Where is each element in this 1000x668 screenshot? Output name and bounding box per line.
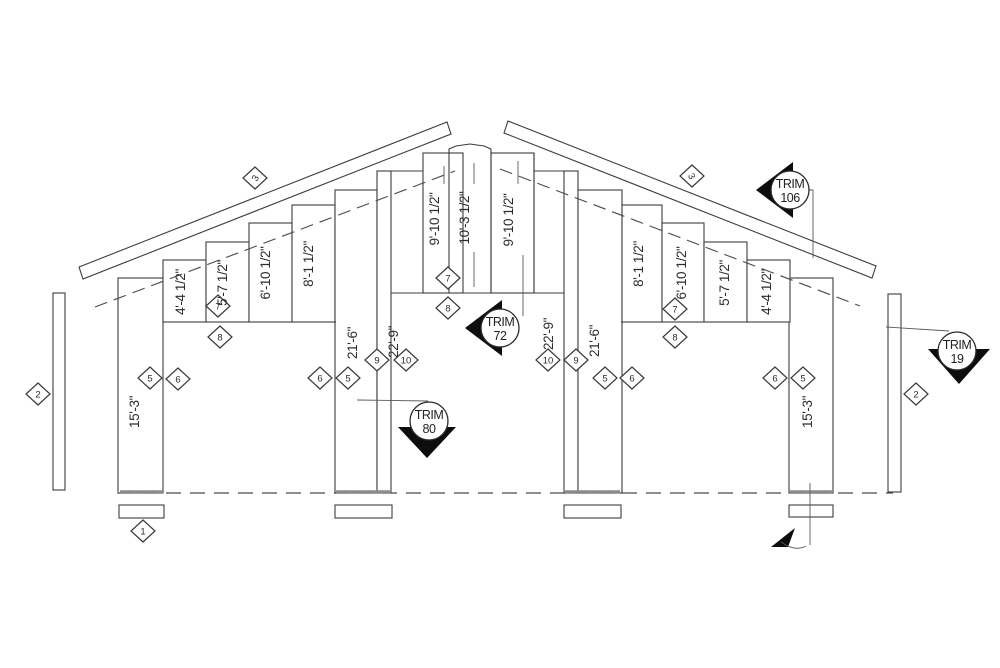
- dim-label: 15'-3": [800, 395, 815, 428]
- dim-label: 5'-7 1/2": [215, 259, 230, 305]
- trim-number: 19: [951, 352, 964, 366]
- dim-label: 9'-10 1/2": [427, 192, 442, 246]
- svg-text:1: 1: [140, 527, 145, 538]
- svg-text:9: 9: [374, 356, 379, 367]
- svg-text:8: 8: [445, 304, 450, 315]
- dim-label: 6'-10 1/2": [258, 246, 273, 300]
- svg-text:10: 10: [543, 356, 554, 367]
- svg-text:7: 7: [445, 274, 450, 285]
- keynote-diamond: 8: [436, 297, 460, 319]
- svg-text:2: 2: [913, 390, 918, 401]
- svg-text:6: 6: [629, 374, 634, 385]
- svg-text:7: 7: [672, 305, 677, 316]
- trim-label: TRIM: [943, 338, 972, 352]
- trim-label: TRIM: [486, 315, 515, 329]
- dim-label: 22'-9": [386, 325, 401, 358]
- framing-elevation-drawing: TRIM 106 TRIM 72 TRIM 80 TRIM 19 2 1 5 6…: [0, 0, 1000, 668]
- trim-marker-106: TRIM 106: [756, 162, 809, 218]
- svg-text:5: 5: [147, 374, 152, 385]
- keynote-diamond: 6: [308, 367, 332, 389]
- keynote-diamond: 6: [166, 368, 190, 390]
- trim-marker-19: TRIM 19: [928, 332, 990, 384]
- keynote-diamond: 2: [26, 383, 50, 405]
- svg-text:6: 6: [175, 375, 180, 386]
- footer-pad: [564, 505, 621, 518]
- dim-label: 8'-1 1/2": [631, 240, 646, 286]
- dim-label: 5'-7 1/2": [717, 259, 732, 305]
- svg-text:2: 2: [35, 390, 40, 401]
- footer-pad: [119, 505, 164, 518]
- dim-label: 15'-3": [127, 395, 142, 428]
- trim-number: 80: [423, 422, 436, 436]
- keynote-diamond: 8: [208, 326, 232, 348]
- svg-text:8: 8: [217, 333, 222, 344]
- keynote-diamond: 6: [620, 367, 644, 389]
- trim-label: TRIM: [415, 408, 444, 422]
- dim-label: 21'-6": [345, 326, 360, 359]
- svg-text:5: 5: [800, 374, 805, 385]
- dim-label: 22'-9": [541, 317, 556, 350]
- trim-number: 106: [780, 191, 800, 205]
- left-wall-post: [118, 278, 163, 493]
- dim-label: 21'-6": [587, 324, 602, 357]
- svg-text:10: 10: [401, 356, 412, 367]
- svg-text:8: 8: [672, 333, 677, 344]
- drawing-canvas: TRIM 106 TRIM 72 TRIM 80 TRIM 19 2 1 5 6…: [0, 0, 1000, 668]
- right-wall-post: [789, 278, 833, 493]
- keynote-diamond: 3: [680, 165, 704, 187]
- dim-label: 8'-1 1/2": [301, 240, 316, 286]
- svg-text:9: 9: [573, 356, 578, 367]
- keynote-diamond: 10: [536, 349, 560, 371]
- svg-text:5: 5: [602, 374, 607, 385]
- svg-text:6: 6: [772, 374, 777, 385]
- dim-label: 6'-10 1/2": [674, 246, 689, 300]
- left-trim-strip: [53, 293, 65, 490]
- dim-label: 10'-3 1/2": [457, 191, 472, 245]
- keynote-diamond: 2: [904, 383, 928, 405]
- trim-label: TRIM: [776, 177, 805, 191]
- footer-pad: [789, 505, 833, 517]
- right-trim-strip: [888, 294, 901, 492]
- keynote-diamond: 3: [243, 167, 267, 189]
- footer-pad: [335, 505, 392, 518]
- keynote-diamond: 6: [763, 367, 787, 389]
- dim-label: 4'-4 1/2": [759, 268, 774, 314]
- svg-text:6: 6: [317, 374, 322, 385]
- keynote-diamond: 8: [663, 326, 687, 348]
- keynote-diamond: 1: [131, 520, 155, 542]
- trim-marker-72: TRIM 72: [465, 300, 519, 356]
- dim-label: 4'-4 1/2": [173, 268, 188, 314]
- dim-label: 9'-10 1/2": [501, 193, 516, 247]
- section-flag-icon: [771, 528, 795, 547]
- trim-marker-80: TRIM 80: [398, 402, 456, 458]
- svg-text:5: 5: [345, 374, 350, 385]
- trim-number: 72: [494, 329, 507, 343]
- right-inner-post: [564, 171, 578, 493]
